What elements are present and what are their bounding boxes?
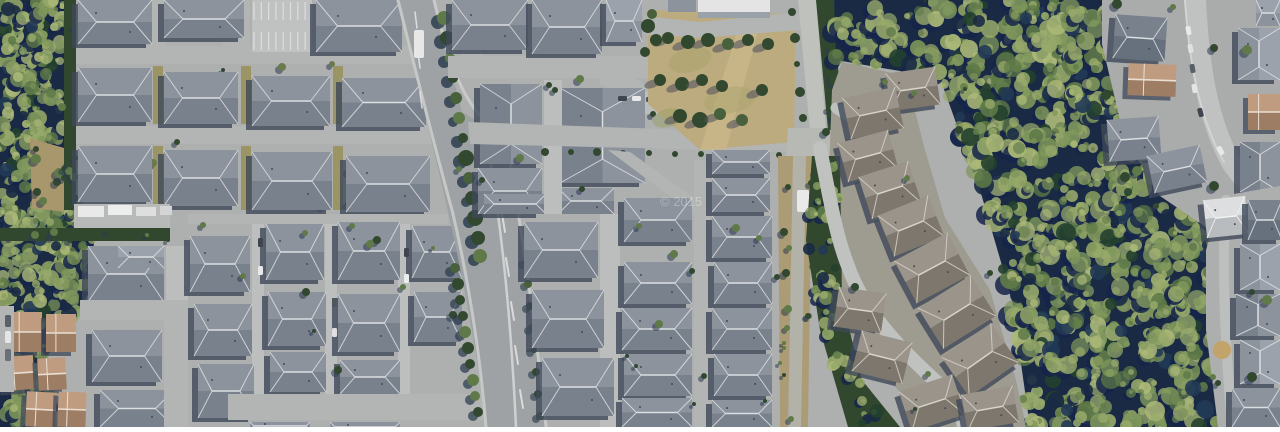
svg-text:© 2015: © 2015 bbox=[660, 194, 702, 209]
